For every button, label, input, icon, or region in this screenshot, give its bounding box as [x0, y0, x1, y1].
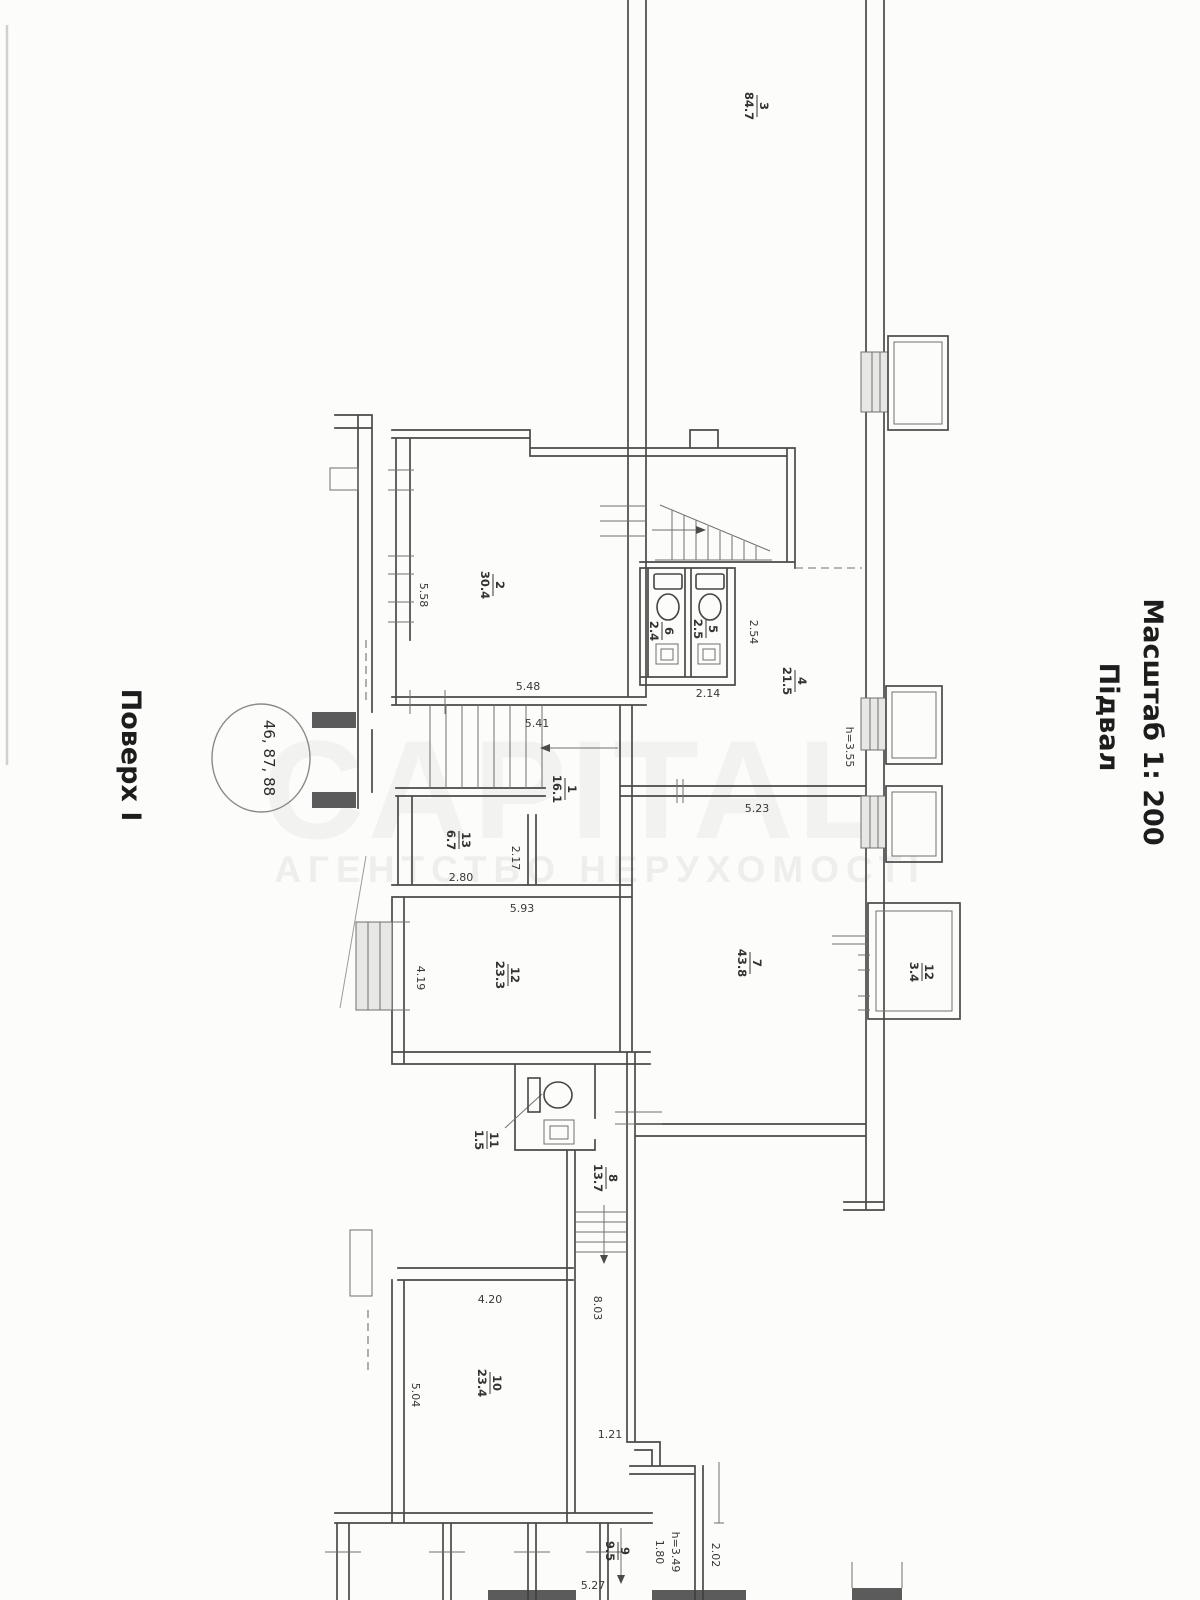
wall-pier	[488, 1590, 576, 1600]
room-label-11: 11 1.5	[472, 1130, 501, 1150]
room-area: 84.7	[742, 92, 756, 120]
room-label-6: 6 2.4	[647, 621, 676, 641]
dimension: 5.04	[409, 1383, 422, 1408]
room-number: 12	[508, 967, 522, 983]
dimension: 4.20	[478, 1293, 503, 1306]
room-number: 10	[490, 1375, 504, 1391]
dimension: 1.80	[653, 1540, 666, 1565]
room-label-5: 5 2.5	[691, 619, 720, 639]
toilet-icon	[654, 574, 682, 589]
room-label-4: 4 21.5	[780, 667, 809, 695]
bay-window	[888, 336, 948, 430]
window-icon	[861, 698, 886, 750]
bay-window	[886, 686, 942, 764]
arrow-icon	[617, 1575, 625, 1584]
room-area: 6.7	[444, 830, 458, 850]
sink-icon	[698, 644, 720, 664]
room-label-12: 12 23.3	[493, 961, 522, 989]
room-area: 2.4	[647, 621, 661, 641]
dimension: 5.48	[516, 680, 541, 693]
room-number: 12	[922, 964, 936, 980]
room-label-9: 9 9.5	[603, 1541, 632, 1561]
toilet-icon	[544, 1082, 572, 1108]
toilet-icon	[657, 594, 679, 620]
window-bays	[868, 336, 960, 1019]
scale-label: Масштаб 1: 200	[1137, 598, 1168, 845]
dimension: 2.54	[747, 620, 760, 645]
room-number: 4	[795, 677, 809, 685]
room-number: 2	[493, 581, 507, 589]
arrow-icon	[600, 1255, 608, 1264]
room-number: 5	[706, 625, 720, 633]
floor-plan-canvas: CAPITAL АГЕНТСТВО НЕРУХОМОСТІ	[0, 0, 1200, 1600]
sink-icon	[544, 1120, 574, 1144]
window-icon	[861, 352, 888, 412]
wall-pier	[312, 792, 356, 808]
room-label-13: 13 6.7	[444, 830, 473, 850]
dimension: 5.93	[510, 902, 535, 915]
wall-pier	[312, 712, 356, 728]
dimension: 5.58	[417, 583, 430, 608]
room-number: 8	[606, 1174, 620, 1182]
dimension: 2.02	[709, 1543, 722, 1568]
room-label-3: 3 84.7	[742, 92, 771, 120]
sink-icon	[661, 649, 673, 660]
room-label-7: 7 43.8	[735, 949, 764, 977]
dimension: h=3.49	[669, 1532, 682, 1573]
room-number: 9	[618, 1547, 632, 1555]
arrow-icon	[696, 526, 706, 534]
dimension: 8.03	[591, 1296, 604, 1321]
room-area: 1.5	[472, 1130, 486, 1150]
floor-label: Поверх I	[115, 689, 146, 822]
dimension: 5.23	[745, 802, 770, 815]
room-area: 16.1	[550, 775, 564, 803]
level-label: Підвал	[1093, 663, 1124, 772]
room-area: 21.5	[780, 667, 794, 695]
toilet-icon	[696, 574, 724, 589]
room-label-12-balcony: 12 3.4	[907, 962, 936, 982]
room-area: 2.5	[691, 619, 705, 639]
room-number: 13	[459, 832, 473, 848]
sink-icon	[550, 1126, 568, 1139]
dimension: 1.21	[598, 1428, 623, 1441]
room-area: 13.7	[591, 1164, 605, 1192]
room-number: 6	[662, 627, 676, 635]
room-number: 3	[757, 102, 771, 110]
wall-pier	[652, 1590, 746, 1600]
room-label-2: 2 30.4	[478, 571, 507, 599]
room-area: 30.4	[478, 571, 492, 599]
dimension: 2.80	[449, 871, 474, 884]
wall-pier	[852, 1588, 902, 1600]
room-label-8: 8 13.7	[591, 1164, 620, 1192]
floor-plan-page: CAPITAL АГЕНТСТВО НЕРУХОМОСТІ	[0, 0, 1200, 1600]
room-area: 23.4	[475, 1369, 489, 1397]
toilet-icon	[699, 594, 721, 620]
room-area: 43.8	[735, 949, 749, 977]
watermark-subtitle: АГЕНТСТВО НЕРУХОМОСТІ	[274, 849, 925, 890]
dimension: 5.27	[581, 1579, 606, 1592]
room-area: 23.3	[493, 961, 507, 989]
window-icon	[861, 796, 886, 848]
apartment-numbers: 46, 87, 88	[260, 720, 278, 796]
dimension: 2.17	[509, 846, 522, 871]
toilet-icon	[528, 1078, 540, 1112]
watermark: CAPITAL АГЕНТСТВО НЕРУХОМОСТІ	[263, 711, 926, 890]
room-number: 1	[565, 785, 579, 793]
room-area: 9.5	[603, 1541, 617, 1561]
room-number: 11	[487, 1132, 501, 1148]
sink-icon	[656, 644, 678, 664]
window-icon	[356, 922, 392, 1010]
dimension: 4.19	[414, 966, 427, 991]
dimension: 2.14	[696, 687, 721, 700]
dimension: 5.41	[525, 717, 550, 730]
room-number: 7	[750, 959, 764, 967]
room-label-10: 10 23.4	[475, 1369, 504, 1397]
dimension: h=3.55	[843, 727, 856, 768]
room-area: 3.4	[907, 962, 921, 982]
sink-icon	[703, 649, 715, 660]
